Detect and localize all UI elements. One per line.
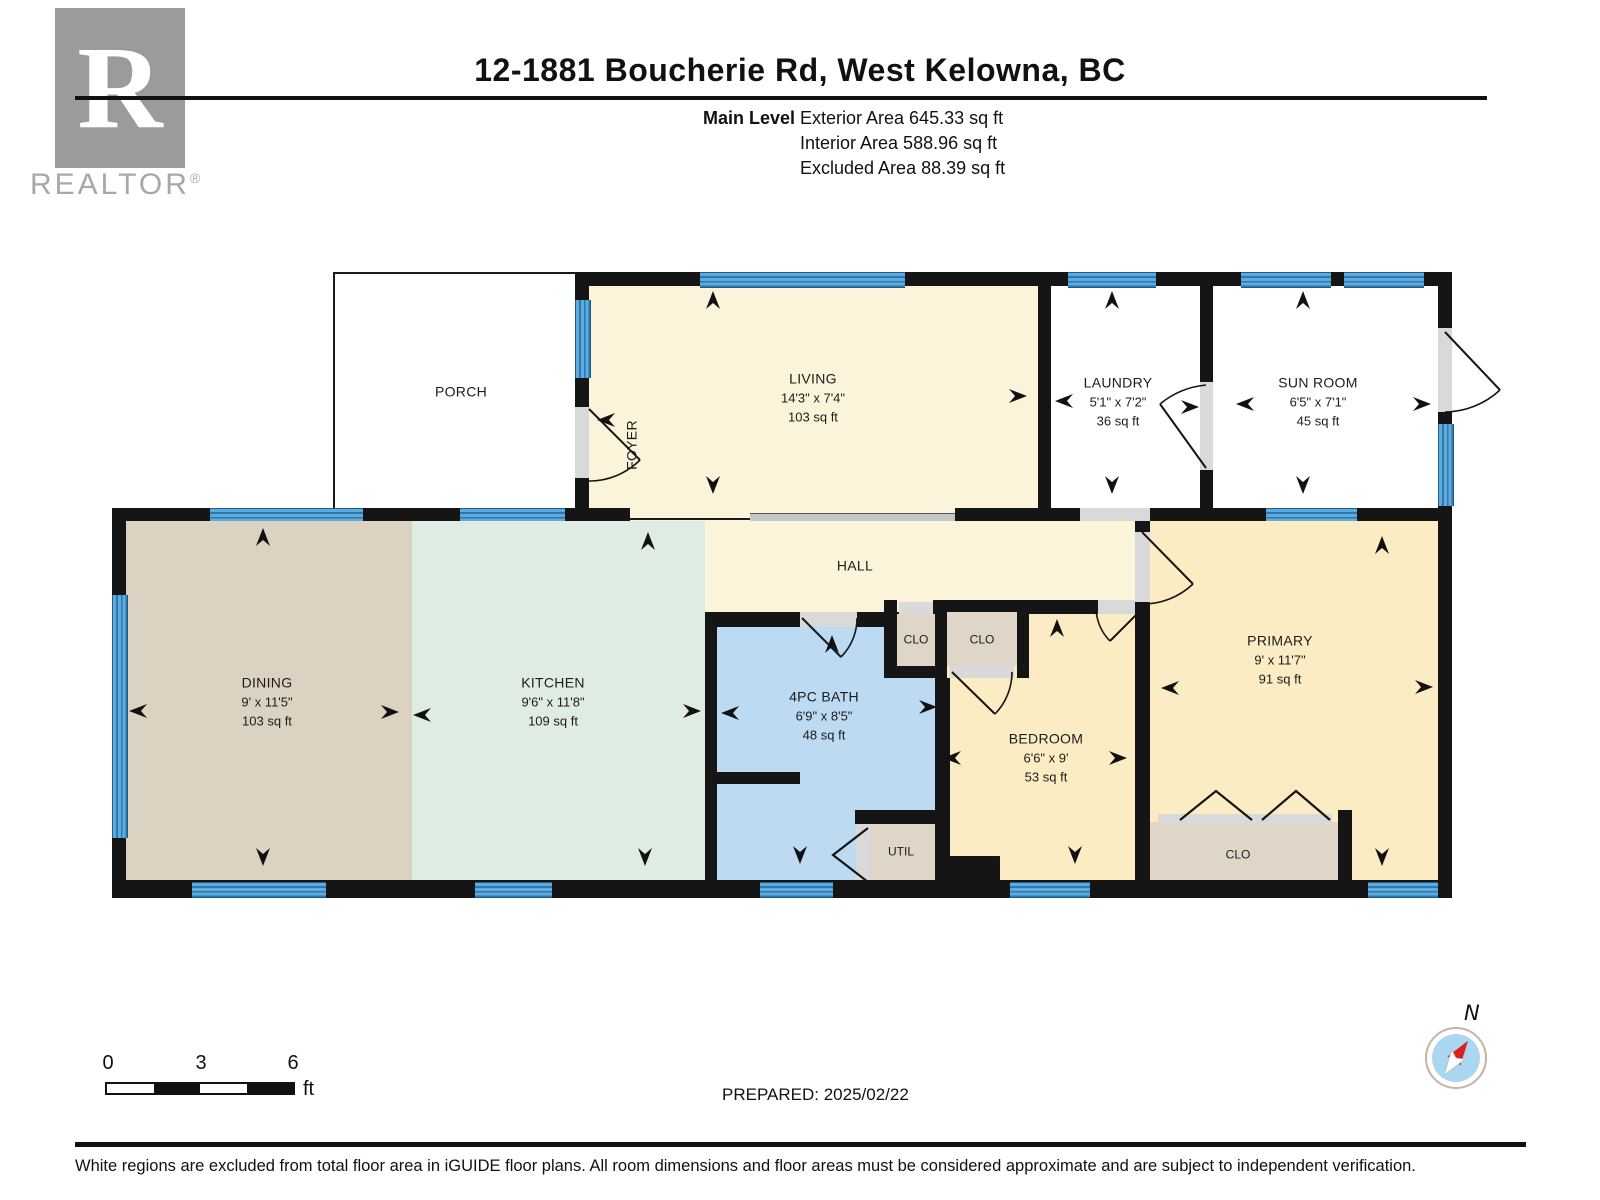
door-arc	[995, 672, 1012, 714]
room-name: BEDROOM	[1009, 731, 1083, 747]
bifold-util	[833, 828, 868, 882]
scale-unit: ft	[303, 1078, 314, 1101]
scale-segment	[200, 1084, 247, 1093]
door-leaf	[952, 672, 995, 714]
floor-plan: PORCH FOYER LIVING 14'3" x 7'4" 103 sq f…	[0, 0, 1600, 1200]
footer-divider	[75, 1142, 1526, 1147]
room-bath-label: 4PC BATH 6'9" x 8'5" 48 sq ft	[789, 687, 859, 746]
door-leaf	[1142, 532, 1193, 584]
scale-tick-0: 0	[102, 1052, 113, 1075]
bifold-doors	[833, 791, 1330, 882]
door-swings	[589, 332, 1500, 714]
room-name: FOYER	[624, 420, 640, 470]
room-dims: 5'1" x 7'2"	[1090, 395, 1147, 410]
room-name: LIVING	[789, 371, 837, 387]
room-kitchen-label: KITCHEN 9'6" x 11'8" 109 sq ft	[521, 673, 585, 732]
room-area: 91 sq ft	[1259, 671, 1302, 686]
room-dims: 6'5" x 7'1"	[1290, 395, 1347, 410]
room-dims: 9' x 11'5"	[241, 695, 292, 710]
room-area: 53 sq ft	[1025, 769, 1068, 784]
room-foyer-label: FOYER	[622, 420, 643, 470]
room-sunroom-label: SUN ROOM 6'5" x 7'1" 45 sq ft	[1278, 373, 1357, 432]
room-name: PORCH	[435, 384, 487, 400]
footer-disclaimer: White regions are excluded from total fl…	[75, 1157, 1525, 1176]
door-arc	[1096, 607, 1110, 641]
room-laundry-label: LAUNDRY 5'1" x 7'2" 36 sq ft	[1084, 373, 1153, 432]
door-leaf	[1110, 607, 1144, 641]
room-area: 45 sq ft	[1297, 413, 1340, 428]
scale-segment	[154, 1084, 201, 1093]
room-dims: 9' x 11'7"	[1254, 653, 1305, 668]
room-name: PRIMARY	[1247, 633, 1313, 649]
scale-tick-3: 3	[195, 1052, 206, 1075]
room-bedroom-label: BEDROOM 6'6" x 9' 53 sq ft	[1009, 729, 1083, 788]
room-porch-label: PORCH	[435, 382, 487, 403]
door-leaf	[802, 618, 841, 657]
room-hall-label: HALL	[837, 556, 873, 577]
closet-primary-label: CLO	[1226, 846, 1251, 863]
room-area: 36 sq ft	[1097, 413, 1140, 428]
room-dining-label: DINING 9' x 11'5" 103 sq ft	[241, 673, 292, 732]
scale-bar: 0 3 6 ft	[103, 1052, 363, 1108]
room-area: 109 sq ft	[528, 713, 578, 728]
room-primary-label: PRIMARY 9' x 11'7" 91 sq ft	[1247, 631, 1313, 690]
room-dims: 9'6" x 11'8"	[521, 695, 584, 710]
floor-plan-page: R REALTOR® 12-1881 Boucherie Rd, West Ke…	[0, 0, 1600, 1200]
room-dims: 6'6" x 9'	[1023, 751, 1068, 766]
door-arc	[841, 618, 857, 657]
scale-segment	[107, 1084, 154, 1093]
room-name: HALL	[837, 558, 873, 574]
door-leaf	[1160, 404, 1206, 468]
room-area: 48 sq ft	[803, 727, 846, 742]
closet-clo2-label: CLO	[970, 631, 995, 648]
room-living-label: LIVING 14'3" x 7'4" 103 sq ft	[781, 369, 845, 428]
bifold-closet	[1262, 791, 1330, 820]
room-area: 103 sq ft	[242, 713, 292, 728]
door-leaf	[1445, 332, 1500, 390]
bifold-closet	[1180, 791, 1252, 820]
closet-util-label: UTIL	[888, 843, 914, 860]
room-name: 4PC BATH	[789, 689, 859, 705]
compass-north-label: N	[1464, 1001, 1480, 1025]
room-dims: 6'9" x 8'5"	[796, 709, 853, 724]
room-name: LAUNDRY	[1084, 375, 1153, 391]
scale-tick-6: 6	[287, 1052, 298, 1075]
room-dims: 14'3" x 7'4"	[781, 391, 845, 406]
scale-segment	[247, 1084, 294, 1093]
door-arc	[1142, 584, 1193, 604]
room-name: DINING	[242, 675, 293, 691]
room-name: SUN ROOM	[1278, 375, 1357, 391]
prepared-date: PREPARED: 2025/02/22	[722, 1085, 909, 1105]
room-name: KITCHEN	[521, 675, 585, 691]
door-arc	[1445, 390, 1500, 412]
plan-annotations	[0, 0, 1600, 1200]
room-area: 103 sq ft	[788, 409, 838, 424]
compass: N	[1398, 992, 1528, 1107]
scale-bar-segments	[105, 1082, 295, 1095]
closet-clo1-label: CLO	[904, 631, 929, 648]
